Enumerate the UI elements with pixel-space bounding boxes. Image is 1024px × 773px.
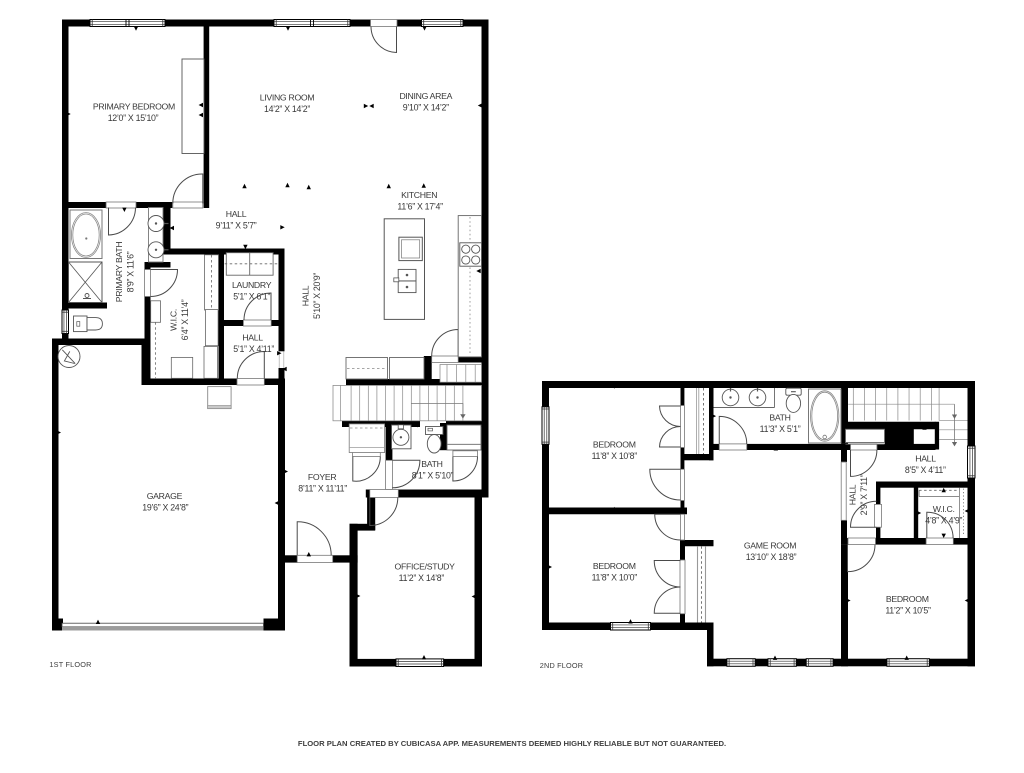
svg-text:11’3” X 5’1”: 11’3” X 5’1” — [760, 424, 801, 434]
svg-text:HALL: HALL — [300, 285, 310, 306]
svg-text:BEDROOM: BEDROOM — [593, 561, 636, 571]
svg-text:BEDROOM: BEDROOM — [886, 594, 929, 604]
svg-text:8’9” X 11’6”: 8’9” X 11’6” — [125, 251, 135, 292]
svg-text:1ST FLOOR: 1ST FLOOR — [49, 660, 91, 669]
svg-text:8’1” X 5’10”: 8’1” X 5’10” — [412, 470, 454, 480]
svg-text:2’9” X 7’11”: 2’9” X 7’11” — [859, 474, 869, 515]
svg-text:11’8” X 10’0”: 11’8” X 10’0” — [592, 572, 638, 582]
svg-text:BATH: BATH — [421, 459, 442, 469]
svg-text:W.I.C.: W.I.C. — [933, 504, 955, 514]
svg-text:8’5” X 4’11”: 8’5” X 4’11” — [905, 465, 946, 475]
svg-text:6’4” X 11’4”: 6’4” X 11’4” — [180, 299, 190, 340]
svg-text:11’8” X 10’8”: 11’8” X 10’8” — [592, 451, 638, 461]
svg-text:KITCHEN: KITCHEN — [401, 190, 437, 200]
svg-text:W.I.C.: W.I.C. — [168, 309, 178, 331]
svg-text:11’6” X 17’4”: 11’6” X 17’4” — [397, 201, 443, 211]
svg-text:11’2” X 14’8”: 11’2” X 14’8” — [399, 573, 445, 583]
svg-text:HALL: HALL — [226, 209, 247, 219]
svg-text:8’11” X 11’11”: 8’11” X 11’11” — [298, 484, 347, 494]
svg-text:5’1” X 6’1”: 5’1” X 6’1” — [233, 291, 270, 301]
svg-text:2ND FLOOR: 2ND FLOOR — [540, 661, 584, 670]
svg-text:13’10” X 18’8”: 13’10” X 18’8” — [746, 552, 797, 562]
svg-text:9’11” X 5’7”: 9’11” X 5’7” — [216, 221, 257, 231]
svg-text:DINING AREA: DINING AREA — [399, 91, 452, 101]
svg-text:PRIMARY BEDROOM: PRIMARY BEDROOM — [93, 101, 175, 111]
svg-text:12’0” X 15’10”: 12’0” X 15’10” — [108, 113, 159, 123]
svg-text:HALL: HALL — [915, 453, 936, 463]
svg-text:14’2” X 14’2”: 14’2” X 14’2” — [264, 104, 310, 114]
svg-text:GAME ROOM: GAME ROOM — [744, 540, 796, 550]
svg-text:5’10” X 20’9”: 5’10” X 20’9” — [312, 273, 322, 319]
svg-text:11’2” X 10’5”: 11’2” X 10’5” — [885, 605, 931, 615]
svg-text:HALL: HALL — [242, 333, 263, 343]
svg-text:OFFICE/STUDY: OFFICE/STUDY — [395, 562, 456, 572]
svg-text:PRIMARY BATH: PRIMARY BATH — [114, 242, 124, 303]
svg-text:GARAGE: GARAGE — [147, 491, 183, 501]
svg-text:5’1” X 4’11”: 5’1” X 4’11” — [233, 344, 274, 354]
svg-text:LAUNDRY: LAUNDRY — [232, 280, 272, 290]
svg-text:9’10” X 14’2”: 9’10” X 14’2” — [403, 102, 449, 112]
svg-text:HALL: HALL — [848, 484, 858, 505]
svg-text:LIVING ROOM: LIVING ROOM — [260, 92, 315, 102]
svg-text:19’6” X 24’8”: 19’6” X 24’8” — [142, 502, 188, 512]
svg-text:FOYER: FOYER — [308, 472, 336, 482]
svg-text:FLOOR PLAN CREATED BY CUBICASA: FLOOR PLAN CREATED BY CUBICASA APP. MEAS… — [298, 739, 726, 748]
svg-text:4’8” X 4’9”: 4’8” X 4’9” — [925, 516, 962, 526]
svg-text:BEDROOM: BEDROOM — [593, 440, 636, 450]
svg-text:BATH: BATH — [769, 412, 790, 422]
